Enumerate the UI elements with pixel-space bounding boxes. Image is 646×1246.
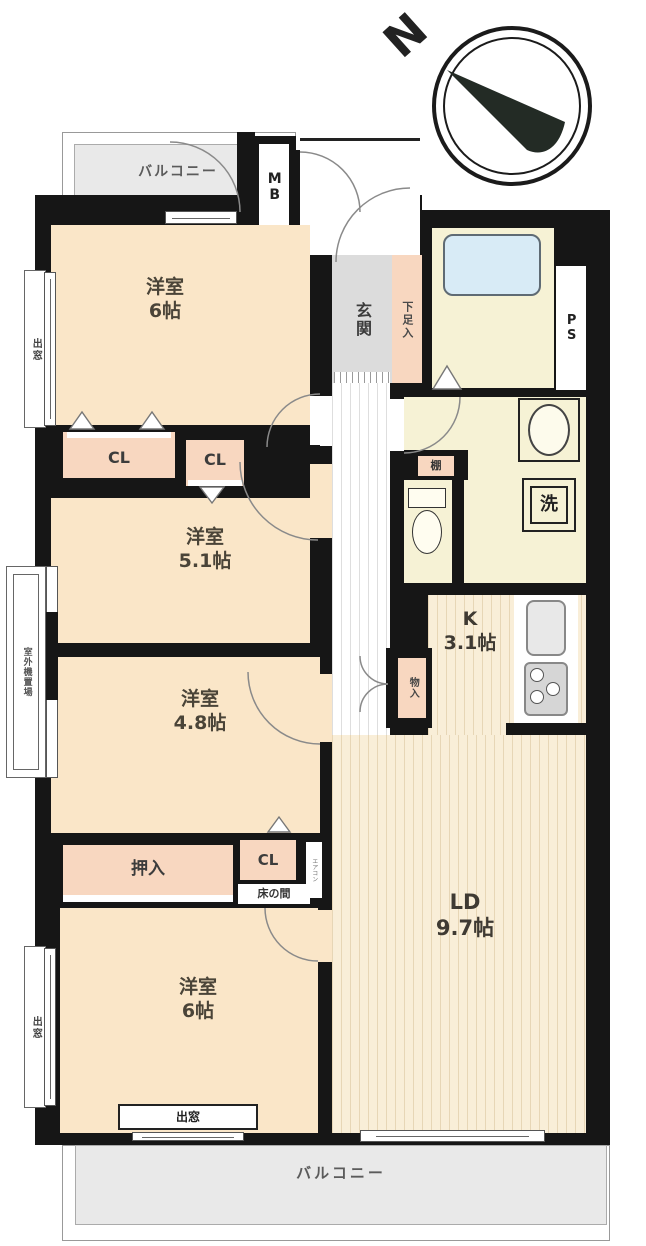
basin-sink xyxy=(528,404,570,456)
corridor xyxy=(332,383,390,735)
room2-doorway xyxy=(310,464,332,538)
ld-balcony-window xyxy=(360,1130,545,1142)
living-dining-label: LD 9.7帖 xyxy=(395,876,535,954)
shoe-cabinet-label: 下足入 xyxy=(392,270,422,370)
balcony-bottom-label: バルコニー xyxy=(75,1158,607,1188)
outdoor-unit-label: 室外機置場 xyxy=(13,590,39,754)
room3-size: 4.8帖 xyxy=(174,712,227,736)
monoire-label: 物入 xyxy=(398,662,426,714)
oshiire-label: 押入 xyxy=(63,848,233,892)
tokonoma-label: 床の間 xyxy=(238,884,310,904)
bathtub xyxy=(443,234,541,296)
meter-box-label: MB xyxy=(259,150,289,224)
bay-window-top-label: 出窓 xyxy=(24,300,46,400)
kitchen-sink xyxy=(526,600,566,656)
room2-name: 洋室 xyxy=(186,526,224,550)
compass-north-label: N xyxy=(369,0,444,74)
closet-2-label: CL xyxy=(186,440,244,480)
outdoor-window-mid-wall xyxy=(46,612,58,700)
aircon-label: エアコン xyxy=(306,844,322,896)
door-stub-wall xyxy=(248,445,320,463)
room1-name: 洋室 xyxy=(146,276,184,300)
ld-size: 9.7帖 xyxy=(436,915,494,941)
burner-2 xyxy=(546,682,560,696)
closet-3-label: CL xyxy=(240,840,296,880)
exterior-notch xyxy=(422,195,610,210)
compass-inner-ring xyxy=(443,37,581,175)
counter-end-wall xyxy=(506,723,586,735)
room4-doorway xyxy=(318,910,332,962)
bay-window-bottom-box-label: 出窓 xyxy=(118,1104,258,1130)
front-door-leaf xyxy=(293,150,300,210)
genkan-label: 玄関 xyxy=(334,275,390,365)
laundry-label: 洗 xyxy=(530,486,568,524)
western-room-4-label: 洋室 6帖 xyxy=(118,968,278,1032)
room1-size: 6帖 xyxy=(149,300,181,324)
western-room-2-label: 洋室 5.1帖 xyxy=(125,518,285,582)
toilet-partition xyxy=(452,480,464,583)
entry-porch xyxy=(300,138,420,255)
room1-doorway xyxy=(310,396,332,446)
kitchen-name: K xyxy=(463,608,478,632)
room4-name: 洋室 xyxy=(179,976,217,1000)
washroom-doorway xyxy=(390,399,404,451)
toilet-bowl xyxy=(412,510,442,554)
bay-window-bottom-track xyxy=(132,1132,244,1141)
room2-size: 5.1帖 xyxy=(179,550,232,574)
burner-1 xyxy=(530,668,544,682)
western-room-3-label: 洋室 4.8帖 xyxy=(120,680,280,744)
closet-2-door-track xyxy=(188,480,242,486)
bay-window-bottom-label: 出窓 xyxy=(24,978,46,1078)
closet-1-label: CL xyxy=(63,438,175,478)
pipe-space-label: PS xyxy=(556,290,586,366)
shelf-label: 棚 xyxy=(418,456,454,476)
toilet-tank xyxy=(408,488,446,508)
genkan-step xyxy=(334,372,390,383)
western-room-1-label: 洋室 6帖 xyxy=(95,268,235,332)
kitchen-label: K 3.1帖 xyxy=(420,600,520,664)
room3-doorway xyxy=(312,674,332,742)
room4-size: 6帖 xyxy=(182,1000,214,1024)
kitchen-size: 3.1帖 xyxy=(444,632,497,656)
floor-plan: バルコニー MB 玄関 下足入 PS 洗 棚 物入 K 3.1帖 xyxy=(0,0,646,1246)
ld-name: LD xyxy=(450,889,481,915)
burner-3 xyxy=(530,690,544,704)
room3-name: 洋室 xyxy=(181,688,219,712)
balcony-window-1 xyxy=(165,211,237,224)
oshiire-door-track xyxy=(63,895,233,902)
